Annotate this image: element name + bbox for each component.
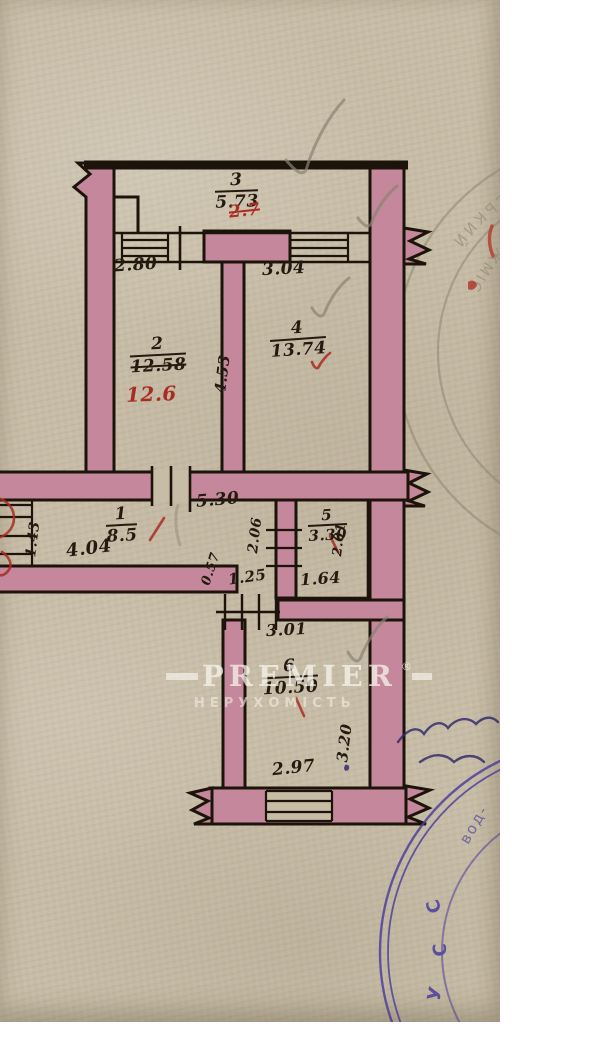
room4-label: 413.74 [269, 318, 327, 361]
room4-area: 13.74 [270, 338, 327, 361]
dim-room4-top: 3.04 [262, 260, 306, 279]
watermark-bar-right [412, 673, 432, 680]
dim-room5-bottom: 1.64 [299, 570, 341, 589]
wall-balcony-pier [204, 231, 290, 262]
stamp-inner-text: вод- [456, 802, 492, 847]
door-hall [151, 466, 191, 512]
wall-break-bottom-left [190, 788, 212, 824]
dim-hall-right: 2.06 [246, 516, 264, 554]
window-room6 [266, 791, 332, 821]
dim-hall-window: 1.43 [24, 520, 42, 558]
dim-room6-bottom: 2.97 [271, 758, 316, 779]
hall-number: 1 [105, 505, 137, 527]
balcony-number: 3 [214, 171, 258, 193]
dim-hall-top: 5.30 [195, 490, 240, 511]
ink-handwriting [344, 718, 498, 771]
room2-red-correction: 12.6 [126, 383, 177, 405]
dim-room2-top: 2.80 [113, 256, 157, 276]
watermark-bar-left [166, 673, 198, 680]
floor-plan-drawing: ЄВСЬКИЙ ✳ МІЖМІС [0, 0, 500, 1022]
watermark-brand: PREMIER [202, 662, 397, 691]
ussr-round-stamp: У С С Р вод- [0, 0, 500, 1022]
watermark-row: PREMIER ® [166, 662, 438, 691]
room2-label: 212.58 [129, 335, 187, 377]
scanned-floor-plan-page: ЄВСЬКИЙ ✳ МІЖМІС [0, 0, 600, 1055]
room2-area: 12.58 [130, 355, 187, 377]
balcony-red-correction: 2.7 [228, 201, 261, 221]
wall-left-outer [74, 163, 114, 500]
dim-room5-right: 2.01 [331, 522, 348, 557]
red-ink-mark-right-edge [489, 226, 493, 256]
red-slash-hall [150, 518, 164, 540]
floor-plan-photo: ЄВСЬКИЙ ✳ МІЖМІС [0, 0, 500, 1022]
dim-room6-top: 3.01 [266, 621, 308, 639]
registered-trademark-icon: ® [401, 660, 412, 673]
watermark-subtitle: НЕРУХОМІСТЬ [194, 696, 438, 711]
premier-watermark: PREMIER ® НЕРУХОМІСТЬ [166, 662, 438, 711]
